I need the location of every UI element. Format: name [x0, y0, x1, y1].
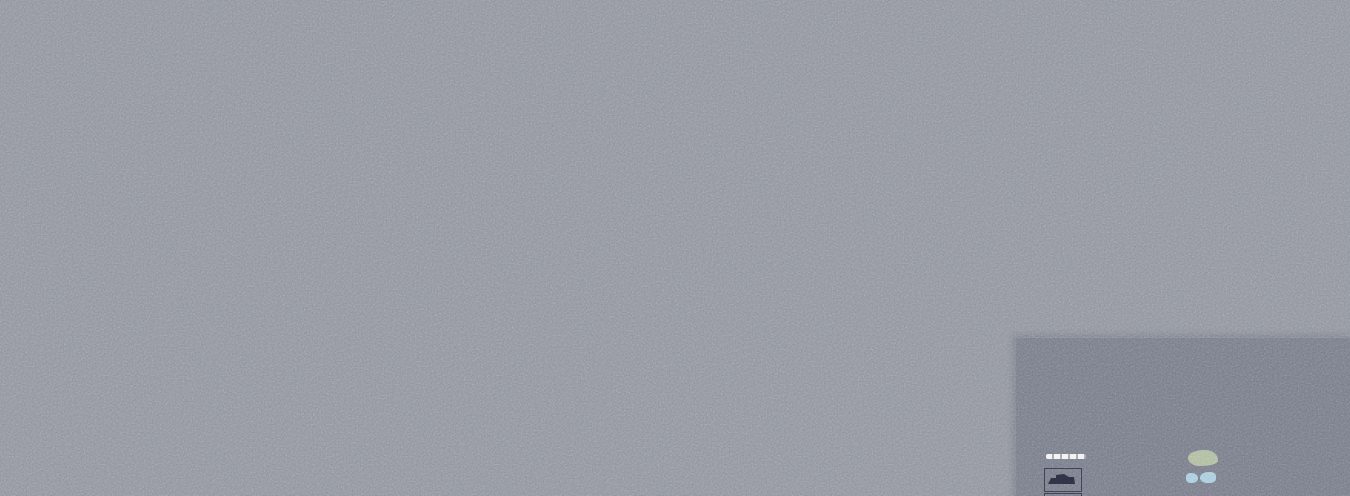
ghetto-map-screenshot — [0, 0, 1350, 496]
water-blob-icon — [1186, 473, 1198, 483]
railway-line-icon — [1186, 492, 1218, 496]
legend-panel — [1015, 337, 1350, 496]
ghetto-buildings-swatch — [1044, 468, 1082, 492]
legend-label-ghetto-extent — [1100, 448, 1188, 458]
railway-swatch — [1186, 492, 1218, 496]
green-area-swatch — [1188, 450, 1218, 466]
water-bodies-swatch — [1186, 472, 1220, 486]
building-icon — [1045, 469, 1079, 489]
water-blob-icon — [1200, 472, 1216, 483]
ghetto-boundary-swatch — [1046, 454, 1086, 459]
